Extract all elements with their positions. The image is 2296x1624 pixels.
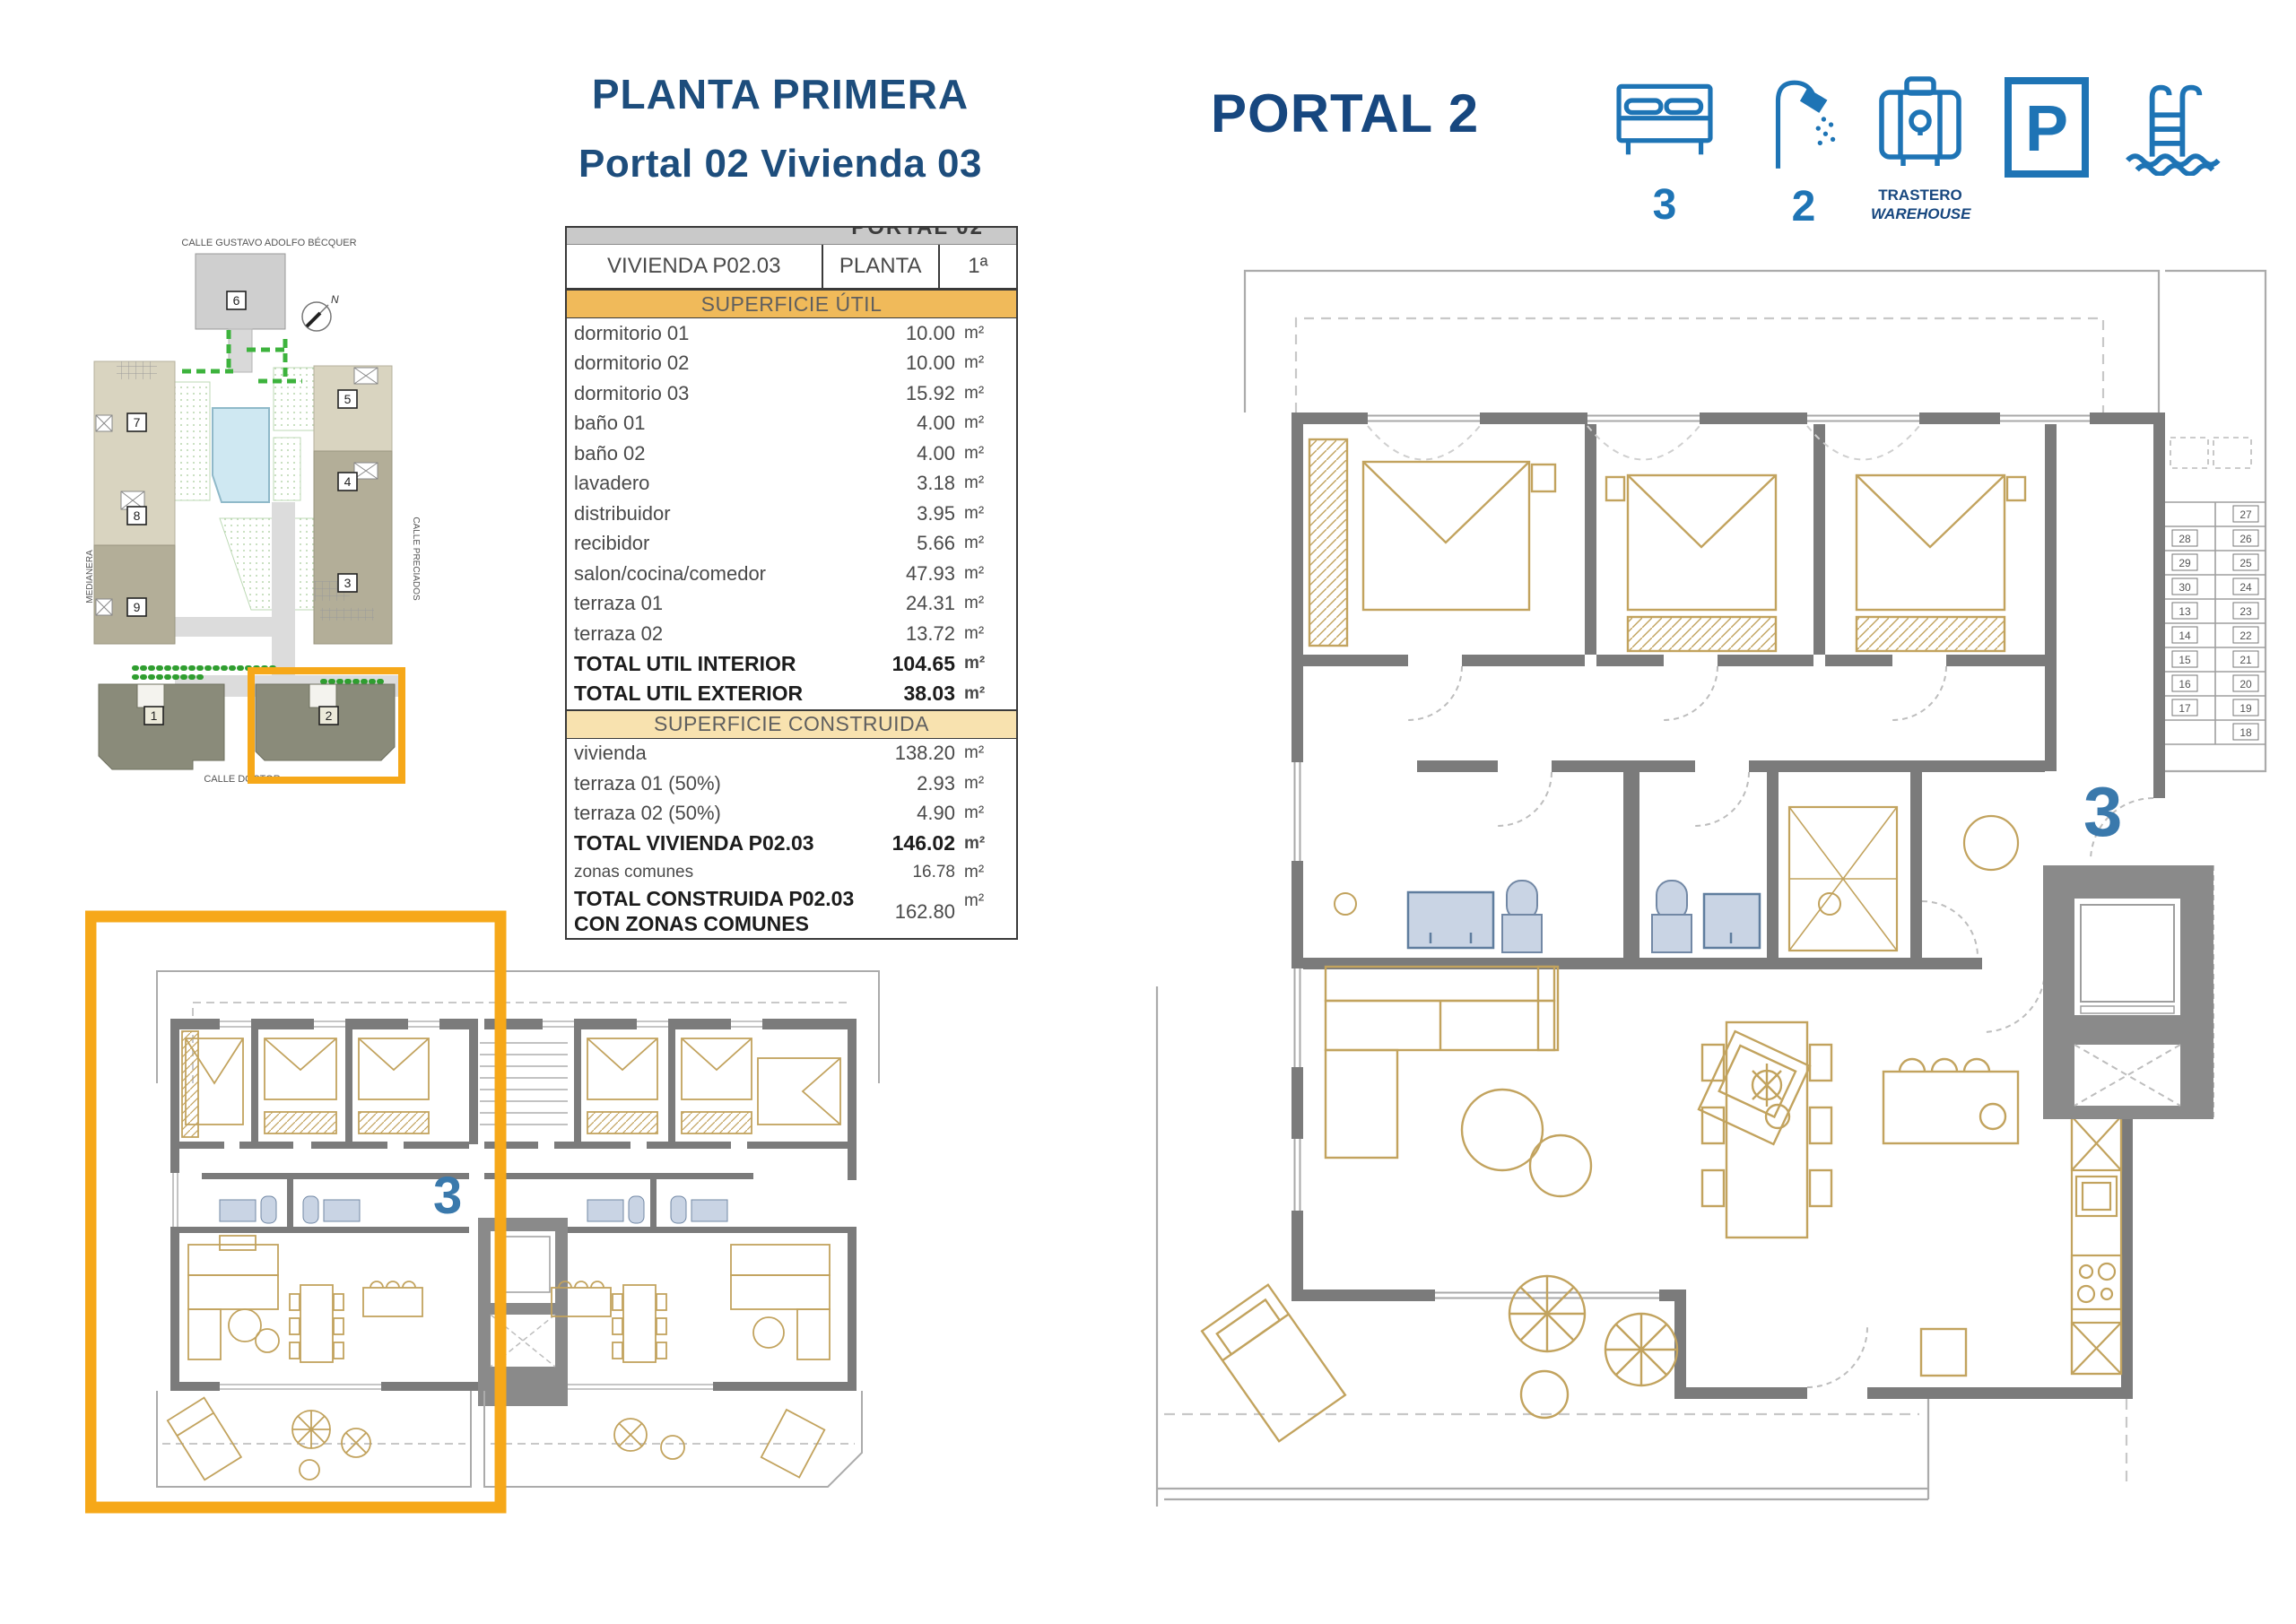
kitchen-strip	[2072, 1116, 2121, 1374]
table-strip-text: PORTAL 02	[851, 228, 984, 240]
svg-text:22: 22	[2239, 630, 2252, 642]
street-left-label: MEDIANERA	[85, 550, 95, 604]
amenity-parking: P	[2002, 75, 2092, 184]
compass-icon: N	[302, 293, 339, 331]
overview-unitB-bath	[587, 1196, 727, 1223]
table-row: terraza 02 (50%)4.90m²	[567, 799, 1016, 829]
site-building-6	[196, 254, 285, 372]
svg-text:24: 24	[2239, 581, 2252, 594]
table-row: terraza 0213.72m²	[567, 619, 1016, 649]
table-row: dormitorio 0210.00m²	[567, 349, 1016, 379]
surface-table: PORTAL 02 VIVIENDA P02.03 PLANTA 1ª SUPE…	[565, 226, 1018, 940]
unit-name: VIVIENDA P02.03	[567, 245, 823, 288]
parking-icon: P	[2002, 75, 2092, 179]
floor-label: PLANTA	[823, 245, 940, 288]
table-row: salon/cocina/comedor47.93m²	[567, 559, 1016, 589]
svg-text:2: 2	[326, 708, 333, 723]
svg-text:29: 29	[2179, 557, 2191, 569]
table-row: lavadero3.18m²	[567, 469, 1016, 499]
suitcase-icon	[1871, 74, 1970, 174]
section-cons: SUPERFICIE CONSTRUIDA	[567, 709, 1016, 739]
svg-text:20: 20	[2239, 678, 2252, 690]
table-row-total: TOTAL UTIL INTERIOR104.65m²	[567, 649, 1016, 680]
table-row: dormitorio 0110.00m²	[567, 318, 1016, 349]
table-row: terraza 01 (50%)2.93m²	[567, 769, 1016, 799]
bedroom-furniture	[1309, 439, 2144, 953]
staircase: 28 29 30 13 14 15 16 17 27 26 25 24 23 2…	[2165, 438, 2266, 744]
table-row: dormitorio 0315.92m²	[567, 378, 1016, 409]
overview-unit-number: 3	[433, 1167, 462, 1225]
table-row: distribuidor3.95m²	[567, 499, 1016, 529]
svg-text:8: 8	[134, 508, 141, 523]
svg-text:28: 28	[2179, 533, 2191, 545]
parking-letter: P	[2025, 93, 2068, 165]
overview-core	[478, 1043, 568, 1406]
svg-text:9: 9	[134, 600, 141, 614]
curtain-arcs	[1368, 426, 1919, 460]
table-row: baño 014.00m²	[567, 409, 1016, 439]
table-row: recibidor5.66m²	[567, 529, 1016, 560]
bedrooms-count: 3	[1613, 180, 1717, 230]
warehouse-label: WAREHOUSE	[1871, 204, 1970, 223]
table-top-strip: PORTAL 02	[567, 228, 1016, 245]
site-plan: CALLE GUSTAVO ADOLFO BÉCQUER MEDIANERA C…	[85, 222, 489, 814]
amenity-bathrooms: 2	[1763, 72, 1844, 231]
table-row-total: TOTAL VIVIENDA P02.03146.02m²	[567, 829, 1016, 859]
portal-title: PORTAL 2	[1211, 83, 1516, 144]
svg-text:4: 4	[344, 474, 352, 489]
trastero-label: TRASTERO	[1871, 186, 1970, 204]
bed-icon	[1613, 77, 1717, 170]
compass-north: N	[331, 293, 339, 306]
street-top-label: CALLE GUSTAVO ADOLFO BÉCQUER	[181, 237, 356, 248]
svg-text:15: 15	[2179, 654, 2191, 666]
detail-unit-number: 3	[2083, 772, 2122, 851]
svg-text:19: 19	[2239, 702, 2252, 715]
bathrooms-count: 2	[1763, 182, 1844, 231]
section-util: SUPERFICIE ÚTIL	[567, 290, 1016, 318]
svg-text:18: 18	[2239, 726, 2252, 739]
svg-text:27: 27	[2239, 508, 2252, 521]
svg-text:21: 21	[2239, 654, 2252, 666]
page-subtitle: Portal 02 Vivienda 03	[502, 142, 1058, 187]
svg-text:1: 1	[151, 708, 158, 723]
floor-value: 1ª	[940, 245, 1016, 288]
svg-text:30: 30	[2179, 581, 2191, 594]
svg-text:25: 25	[2239, 557, 2252, 569]
title-block: PLANTA PRIMERA Portal 02 Vivienda 03	[502, 70, 1058, 187]
svg-text:13: 13	[2179, 605, 2191, 618]
svg-text:16: 16	[2179, 678, 2191, 690]
overview-unitA-furniture	[182, 1031, 429, 1362]
amenity-bedrooms: 3	[1613, 77, 1717, 230]
table-row: vivienda138.20m²	[567, 739, 1016, 769]
svg-text:5: 5	[344, 392, 352, 406]
overview-floor-plan: 3	[85, 904, 919, 1514]
table-row-total: TOTAL UTIL EXTERIOR38.03m²	[567, 679, 1016, 709]
svg-text:14: 14	[2179, 630, 2191, 642]
amenity-trastero: TRASTERO WAREHOUSE	[1871, 74, 1970, 224]
street-right-label: CALLE PRECIADOS	[411, 517, 421, 601]
svg-text:26: 26	[2239, 533, 2252, 545]
svg-text:7: 7	[134, 415, 141, 430]
site-pool	[213, 408, 269, 502]
site-buildings-bottom	[99, 684, 395, 769]
amenity-pool	[2124, 81, 2228, 180]
svg-text:6: 6	[233, 293, 240, 308]
svg-text:17: 17	[2179, 702, 2191, 715]
pool-icon	[2124, 81, 2228, 176]
elevator-core	[2043, 865, 2213, 1119]
table-row: terraza 0124.31m²	[567, 589, 1016, 620]
table-row: baño 024.00m²	[567, 439, 1016, 469]
living-furniture	[1326, 967, 2018, 1376]
page-title: PLANTA PRIMERA	[502, 70, 1058, 118]
table-row: zonas comunes16.78m²	[567, 859, 1016, 886]
svg-text:3: 3	[344, 576, 352, 590]
shower-icon	[1763, 72, 1844, 172]
detail-floor-plan: 28 29 30 13 14 15 16 17 27 26 25 24 23 2…	[1139, 233, 2296, 1560]
brochure-page: PLANTA PRIMERA Portal 02 Vivienda 03 POR…	[0, 0, 2296, 1624]
apartment-windows	[1295, 416, 2091, 1298]
table-header: VIVIENDA P02.03 PLANTA 1ª	[567, 245, 1016, 290]
svg-text:23: 23	[2239, 605, 2252, 618]
